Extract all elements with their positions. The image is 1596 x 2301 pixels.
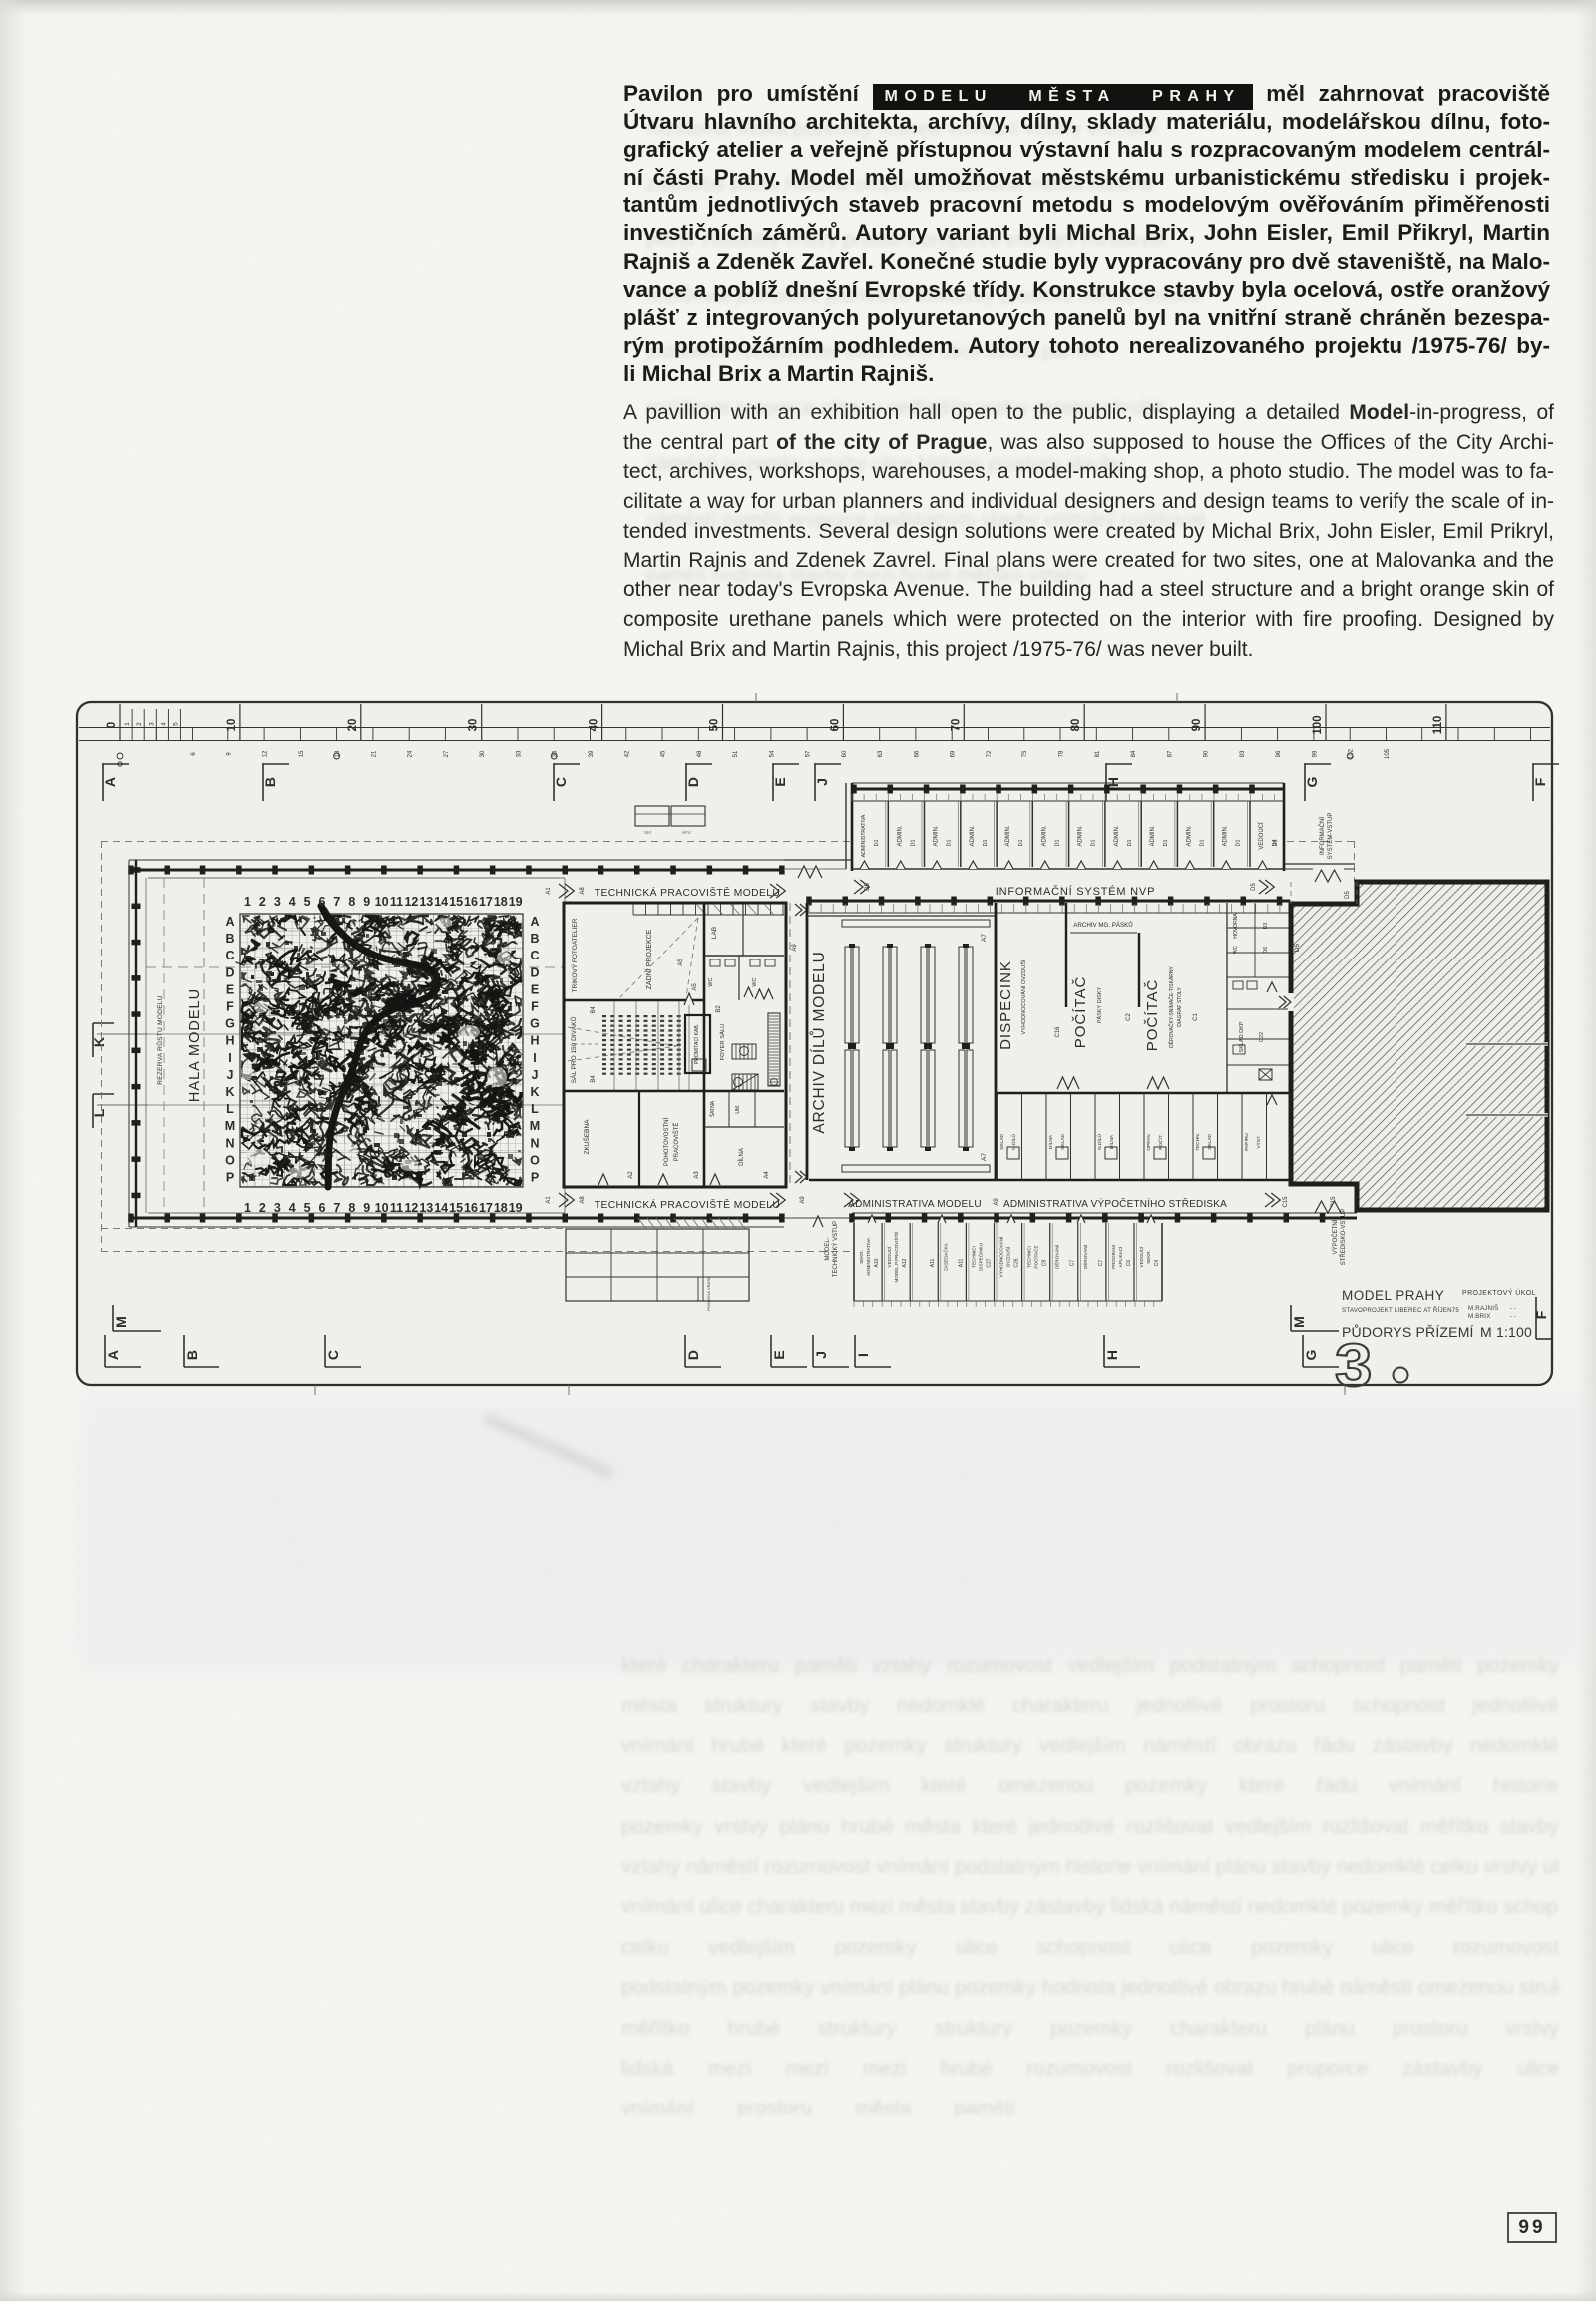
svg-text:- -: - -	[1510, 1305, 1516, 1312]
svg-text:VYHODNOCOVÁNÍ: VYHODNOCOVÁNÍ	[998, 1236, 1004, 1278]
svg-text:69: 69	[951, 750, 957, 757]
svg-text:M.BRIX: M.BRIX	[1468, 1313, 1491, 1320]
svg-text:ADMIN.: ADMIN.	[1041, 825, 1047, 846]
svg-text:PRACOVIŠTĚ: PRACOVIŠTĚ	[672, 1123, 680, 1162]
svg-text:SKl: SKl	[644, 830, 651, 835]
svg-text:60: 60	[842, 750, 848, 757]
svg-text:93: 93	[1240, 750, 1246, 757]
svg-text:B: B	[530, 932, 539, 946]
svg-text:A: A	[530, 915, 539, 929]
svg-text:27: 27	[444, 750, 450, 757]
svg-text:24: 24	[408, 750, 414, 757]
svg-text:6: 6	[319, 1201, 326, 1215]
svg-text:D1: D1	[1236, 839, 1242, 846]
svg-text:POČÍTAČ: POČÍTAČ	[1072, 976, 1089, 1049]
svg-text:DĚROVÁNÍ: DĚROVÁNÍ	[1081, 1244, 1088, 1269]
svg-text:REZERVA RŮSTU MODELU: REZERVA RŮSTU MODELU	[155, 995, 164, 1085]
svg-text:3: 3	[1335, 1333, 1372, 1396]
svg-text:C: C	[225, 949, 234, 962]
svg-text:6: 6	[319, 895, 326, 909]
svg-text:ADMIN.: ADMIN.	[970, 825, 976, 846]
svg-text:7: 7	[333, 1201, 340, 1215]
svg-text:11: 11	[390, 1201, 403, 1215]
svg-text:C: C	[530, 949, 539, 962]
svg-text:POČÍTAČE: POČÍTAČE	[1033, 1245, 1039, 1268]
svg-text:ADMINISTRATIVA MODELU: ADMINISTRATIVA MODELU	[848, 1199, 982, 1210]
svg-text:A2: A2	[628, 1171, 634, 1179]
svg-text:A8: A8	[580, 1196, 586, 1204]
svg-text:30: 30	[480, 750, 486, 757]
svg-text:J: J	[814, 778, 830, 786]
svg-text:C22: C22	[1259, 1032, 1265, 1042]
svg-text:M: M	[225, 1119, 235, 1133]
svg-text:78: 78	[1059, 750, 1065, 757]
svg-text:2: 2	[136, 722, 143, 726]
svg-text:STAVOPROJEKT LIBEREC AT ŘÍJEN7: STAVOPROJEKT LIBEREC AT ŘÍJEN75	[1342, 1306, 1459, 1314]
svg-text:4: 4	[160, 722, 167, 726]
svg-text:D5: D5	[1294, 943, 1301, 952]
svg-text:LAB: LAB	[711, 927, 718, 939]
svg-text:SKLAD DKP: SKLAD DKP	[1239, 1021, 1245, 1052]
svg-text:M: M	[530, 1119, 540, 1133]
svg-text:30: 30	[468, 719, 480, 732]
svg-text:G: G	[225, 1017, 235, 1031]
svg-text:D5: D5	[1345, 891, 1351, 899]
svg-text:75: 75	[1022, 750, 1028, 757]
svg-text:D: D	[225, 965, 234, 979]
svg-text:10: 10	[375, 895, 389, 909]
svg-text:57: 57	[806, 750, 812, 757]
svg-text:I: I	[228, 1051, 231, 1065]
svg-text:63: 63	[878, 750, 884, 757]
svg-text:4: 4	[289, 895, 296, 909]
svg-text:80: 80	[1070, 719, 1082, 732]
svg-text:5: 5	[304, 895, 311, 909]
svg-text:D: D	[685, 777, 701, 787]
svg-text:39: 39	[589, 750, 595, 757]
svg-text:A9: A9	[800, 1196, 806, 1204]
svg-text:3: 3	[274, 1201, 281, 1215]
svg-text:TECHNICI: TECHNICI	[1027, 1246, 1032, 1268]
svg-text:C6: C6	[1126, 1260, 1132, 1267]
svg-text:MODEL.P.PRACOVIŠTĚ: MODEL.P.PRACOVIŠTĚ	[892, 1232, 899, 1283]
svg-text:I: I	[855, 1353, 871, 1357]
svg-text:ZADNÍ PROJEKCE: ZADNÍ PROJEKCE	[644, 929, 653, 989]
svg-text:ADMIN.: ADMIN.	[1005, 825, 1011, 846]
svg-text:MODEL-: MODEL-	[825, 1237, 831, 1260]
svg-text:42: 42	[624, 750, 630, 757]
svg-text:D1: D1	[1199, 839, 1205, 846]
svg-text:C15: C15	[1283, 1196, 1289, 1208]
svg-text:ZASEDAČKA: ZASEDAČKA	[942, 1242, 948, 1271]
svg-text:ARCHIV DÍLŮ MODELU: ARCHIV DÍLŮ MODELU	[810, 951, 828, 1133]
svg-text:WC: WC	[1233, 945, 1239, 954]
svg-text:90: 90	[1204, 750, 1210, 757]
svg-text:1: 1	[124, 722, 131, 726]
svg-text:ADMIN.: ADMIN.	[897, 825, 903, 846]
svg-text:15: 15	[449, 1201, 463, 1215]
svg-text:99: 99	[1312, 750, 1318, 757]
svg-text:C1: C1	[1193, 1013, 1199, 1021]
svg-text:TECHN.: TECHN.	[1195, 1133, 1201, 1151]
svg-text:A: A	[105, 1350, 121, 1360]
svg-text:L: L	[91, 1108, 107, 1117]
svg-text:POHOTOVOSTNÍ: POHOTOVOSTNÍ	[663, 1118, 670, 1167]
svg-text:HOVORNA: HOVORNA	[1233, 913, 1239, 939]
svg-text:K: K	[225, 1085, 234, 1099]
svg-text:PAPÍRU: PAPÍRU	[1243, 1133, 1250, 1151]
svg-text:SEKR.: SEKR.	[1146, 1250, 1151, 1264]
svg-text:ARCHIV MG. PÁSKŮ: ARCHIV MG. PÁSKŮ	[1073, 922, 1132, 929]
svg-text:20: 20	[347, 719, 359, 732]
svg-text:- -: - -	[1510, 1313, 1516, 1320]
svg-text:E: E	[772, 777, 788, 786]
svg-text:F: F	[1532, 777, 1548, 786]
svg-text:POČÍTAČ: POČÍTAČ	[1144, 979, 1161, 1052]
svg-text:E: E	[226, 982, 234, 996]
svg-text:A: A	[225, 915, 234, 929]
svg-text:A1: A1	[546, 887, 552, 895]
svg-text:9: 9	[363, 1201, 370, 1215]
svg-text:C4: C4	[1154, 1260, 1160, 1267]
svg-text:12: 12	[404, 895, 418, 909]
svg-text:2: 2	[259, 895, 266, 909]
svg-text:A7: A7	[981, 1153, 988, 1161]
svg-text:13: 13	[419, 1201, 433, 1215]
svg-text:INFORMAČNÍ: INFORMAČNÍ	[1319, 817, 1326, 855]
svg-text:14: 14	[434, 1201, 448, 1215]
svg-text:12: 12	[404, 1201, 418, 1215]
svg-text:A9: A9	[792, 944, 798, 952]
svg-text:13: 13	[419, 895, 433, 909]
svg-text:7: 7	[333, 895, 340, 909]
svg-text:51: 51	[733, 750, 739, 757]
svg-text:H: H	[1104, 1350, 1120, 1360]
svg-text:C7: C7	[1070, 1260, 1076, 1267]
svg-text:H: H	[225, 1034, 234, 1048]
svg-text:F: F	[1533, 1310, 1549, 1319]
svg-text:A5: A5	[692, 983, 698, 991]
svg-text:VEDOUCÍ: VEDOUCÍ	[1138, 1246, 1144, 1268]
svg-text:D1: D1	[947, 839, 953, 846]
svg-text:19: 19	[509, 895, 523, 909]
svg-text:8: 8	[348, 895, 355, 909]
svg-text:SYSTÉM-VSTUP: SYSTÉM-VSTUP	[1327, 813, 1334, 860]
svg-text:OVZDUŠÍ: OVZDUŠÍ	[1005, 1246, 1011, 1267]
svg-text:60: 60	[829, 719, 841, 732]
svg-text:A1: A1	[546, 1196, 552, 1204]
svg-text:VÝPOČETNÍ: VÝPOČETNÍ	[1332, 1219, 1339, 1254]
svg-text:D1: D1	[983, 839, 989, 846]
svg-text:M.RAJNIŠ: M.RAJNIŠ	[1468, 1305, 1498, 1312]
svg-text:ADMIN.: ADMIN.	[1078, 825, 1084, 846]
svg-text:16: 16	[464, 1201, 478, 1215]
svg-text:TECHNICKÁ PRACOVIŠTĚ MODELU: TECHNICKÁ PRACOVIŠTĚ MODELU	[595, 886, 780, 899]
svg-text:5: 5	[172, 722, 179, 726]
svg-text:K: K	[91, 1037, 107, 1047]
svg-text:TECHNICI: TECHNICI	[971, 1246, 976, 1268]
svg-text:DIAGRAF STOLY: DIAGRAF STOLY	[1177, 987, 1183, 1027]
svg-text:SEKR.: SEKR.	[859, 1250, 864, 1264]
svg-text:POSUVNÁ VRATA: POSUVNÁ VRATA	[706, 1277, 711, 1311]
svg-text:D3: D3	[1263, 923, 1269, 930]
svg-text:8: 8	[348, 1201, 355, 1215]
svg-text:PROMÍTACÍ KAB.: PROMÍTACÍ KAB.	[693, 1024, 700, 1064]
svg-text:A: A	[102, 777, 118, 787]
svg-text:14: 14	[434, 895, 448, 909]
svg-text:C16: C16	[1055, 1026, 1061, 1038]
svg-text:C: C	[325, 1350, 341, 1360]
svg-text:C9: C9	[1042, 1260, 1048, 1267]
svg-text:45: 45	[661, 750, 667, 757]
svg-text:N: N	[225, 1136, 234, 1150]
svg-text:21: 21	[371, 750, 377, 757]
svg-text:A11: A11	[930, 1259, 936, 1268]
svg-text:72: 72	[987, 750, 993, 757]
svg-text:15: 15	[449, 895, 463, 909]
svg-text:O: O	[530, 1153, 540, 1167]
svg-text:WC: WC	[752, 977, 758, 986]
svg-text:D1: D1	[1091, 839, 1097, 846]
svg-text:M 1:100: M 1:100	[1480, 1324, 1532, 1340]
svg-text:G: G	[530, 1017, 540, 1031]
svg-text:WC: WC	[708, 977, 714, 986]
svg-text:B4: B4	[591, 1075, 597, 1083]
svg-text:19: 19	[509, 1201, 523, 1215]
svg-text:48: 48	[697, 750, 703, 757]
svg-text:12: 12	[263, 750, 269, 757]
svg-text:0: 0	[106, 722, 118, 728]
svg-text:D1: D1	[874, 839, 880, 846]
svg-text:A4: A4	[764, 1171, 770, 1179]
svg-text:DĚROVÁNÍ: DĚROVÁNÍ	[1053, 1244, 1060, 1269]
svg-text:INFORMAČNÍ SYSTÉM NVP: INFORMAČNÍ SYSTÉM NVP	[996, 885, 1155, 898]
svg-text:DĚROVAČKY-SNÍMAČE-TISKÁRNY: DĚROVAČKY-SNÍMAČE-TISKÁRNY	[1167, 965, 1175, 1047]
svg-text:TECHNICKÁ PRACOVIŠTĚ MODELU: TECHNICKÁ PRACOVIŠTĚ MODELU	[595, 1198, 780, 1211]
svg-text:10: 10	[375, 1201, 389, 1215]
svg-text:D: D	[685, 1350, 701, 1360]
svg-text:OPRAV.: OPRAV.	[1146, 1133, 1152, 1150]
svg-text:TECHNICKÝ VSTUP: TECHNICKÝ VSTUP	[832, 1221, 839, 1277]
svg-text:5: 5	[304, 1201, 311, 1215]
svg-text:D1: D1	[1018, 839, 1024, 846]
svg-text:J: J	[813, 1351, 829, 1359]
svg-text:F: F	[531, 1000, 539, 1014]
svg-text:C27: C27	[986, 1258, 992, 1267]
svg-text:18: 18	[494, 1201, 508, 1215]
svg-text:D1: D1	[910, 839, 916, 846]
svg-text:PÁSKY DISKY: PÁSKY DISKY	[1096, 987, 1103, 1024]
svg-text:DÍLNA: DÍLNA	[738, 1148, 745, 1166]
svg-text:I: I	[533, 1051, 536, 1065]
svg-text:SKLAD: SKLAD	[999, 1134, 1005, 1150]
svg-text:33: 33	[517, 750, 523, 757]
svg-text:A12: A12	[902, 1258, 908, 1267]
svg-text:P: P	[531, 1171, 539, 1185]
svg-text:2: 2	[259, 1201, 266, 1215]
svg-text:HALA MODELU: HALA MODELU	[187, 988, 202, 1102]
svg-text:J: J	[532, 1068, 539, 1082]
svg-text:FOYER SÁLU: FOYER SÁLU	[719, 1024, 726, 1061]
svg-text:DISPECINK: DISPECINK	[997, 960, 1014, 1050]
svg-text:SÁL PRO 150 DIVÁKŮ: SÁL PRO 150 DIVÁKŮ	[569, 1016, 578, 1083]
svg-text:E: E	[771, 1350, 787, 1359]
svg-text:B: B	[225, 932, 234, 946]
svg-text:96: 96	[1276, 750, 1282, 757]
svg-text:VÝST.: VÝST.	[1255, 1135, 1262, 1148]
svg-text:B: B	[262, 777, 278, 787]
svg-text:P: P	[226, 1171, 234, 1185]
svg-text:A3: A3	[694, 1171, 700, 1179]
svg-text:105: 105	[1385, 748, 1391, 759]
svg-text:A7: A7	[981, 934, 988, 942]
svg-text:D5: D5	[865, 883, 871, 891]
svg-text:A10: A10	[874, 1258, 880, 1267]
svg-text:E: E	[531, 982, 539, 996]
svg-text:G: G	[1304, 776, 1320, 787]
svg-text:C7: C7	[1098, 1260, 1104, 1267]
svg-text:B2: B2	[716, 1005, 722, 1013]
svg-text:VEDOUCÍ: VEDOUCÍ	[1258, 822, 1265, 850]
svg-text:66: 66	[914, 750, 920, 757]
svg-text:1: 1	[244, 895, 251, 909]
svg-text:ŠATNA: ŠATNA	[709, 1100, 716, 1117]
svg-text:DISPEČINKU: DISPEČINKU	[977, 1243, 983, 1271]
svg-text:A9: A9	[994, 1198, 999, 1206]
svg-text:4: 4	[289, 1201, 296, 1215]
svg-text:A8: A8	[580, 887, 586, 895]
svg-text:D1: D1	[1163, 839, 1169, 846]
svg-text:K: K	[530, 1085, 539, 1099]
svg-text:ZKUŠEBNA: ZKUŠEBNA	[582, 1119, 591, 1155]
svg-text:C: C	[553, 777, 569, 787]
svg-text:D1: D1	[1127, 839, 1133, 846]
svg-text:ADMINISTRATIVA VÝPOČETNÍHO STŘ: ADMINISTRATIVA VÝPOČETNÍHO STŘEDISKA	[1003, 1197, 1227, 1210]
svg-text:B4: B4	[591, 1006, 597, 1014]
svg-text:15: 15	[299, 750, 305, 757]
svg-text:16: 16	[464, 895, 478, 909]
svg-text:M: M	[113, 1316, 129, 1328]
svg-text:87: 87	[1167, 750, 1173, 757]
svg-text:ADMINISTRATIVA: ADMINISTRATIVA	[866, 1237, 871, 1276]
svg-text:PROGRAM: PROGRAM	[1111, 1245, 1116, 1269]
svg-text:D: D	[530, 965, 539, 979]
svg-text:9: 9	[363, 895, 370, 909]
svg-text:ADMIN.: ADMIN.	[934, 825, 940, 846]
svg-text:H: H	[530, 1034, 539, 1048]
svg-text:ADMIN.: ADMIN.	[1150, 825, 1156, 846]
svg-text:L: L	[531, 1102, 539, 1116]
svg-text:1: 1	[244, 1201, 251, 1215]
svg-text:VYHODNOCOVÁNÍ OVZDUŠÍ: VYHODNOCOVÁNÍ OVZDUŠÍ	[1020, 959, 1027, 1034]
svg-text:ADMIN.: ADMIN.	[1114, 825, 1120, 846]
svg-text:M: M	[1291, 1316, 1307, 1328]
svg-text:90: 90	[1191, 719, 1203, 732]
svg-text:B: B	[184, 1350, 199, 1360]
svg-text:ADMINISTRATIVA: ADMINISTRATIVA	[861, 814, 867, 857]
svg-text:APLIKACÍ: APLIKACÍ	[1117, 1246, 1123, 1267]
svg-text:DÍLNA: DÍLNA	[1047, 1134, 1054, 1149]
svg-text:ADMIN.: ADMIN.	[1186, 825, 1192, 846]
svg-text:18: 18	[494, 895, 508, 909]
svg-text:D5: D5	[1251, 883, 1257, 891]
svg-text:A11: A11	[958, 1259, 964, 1268]
svg-text:54: 54	[769, 750, 775, 757]
svg-text:110: 110	[1432, 716, 1444, 735]
svg-text:84: 84	[1131, 750, 1137, 757]
svg-text:D1: D1	[1054, 839, 1060, 846]
svg-text:C2: C2	[1126, 1013, 1132, 1021]
svg-text:3: 3	[274, 895, 281, 909]
svg-text:17: 17	[479, 1201, 493, 1215]
svg-text:N: N	[530, 1136, 539, 1150]
svg-text:J: J	[227, 1068, 234, 1082]
svg-text:A5: A5	[678, 959, 684, 966]
svg-text:VEDOUCÍ: VEDOUCÍ	[886, 1246, 892, 1268]
svg-text:HFd: HFd	[682, 830, 691, 835]
svg-text:C26: C26	[1014, 1258, 1020, 1267]
svg-text:N.DÍLŮ: N.DÍLŮ	[1096, 1134, 1103, 1150]
svg-text:11: 11	[390, 895, 403, 909]
svg-text:MODEL PRAHY: MODEL PRAHY	[1342, 1288, 1444, 1303]
svg-text:ADMIN.: ADMIN.	[1223, 825, 1229, 846]
svg-text:TRIKOVÝ FOTOATELIER: TRIKOVÝ FOTOATELIER	[570, 918, 579, 992]
svg-text:PROJEKTOVÝ ÚKOL: PROJEKTOVÝ ÚKOL	[1462, 1288, 1536, 1297]
svg-text:50: 50	[709, 719, 721, 732]
svg-text:17: 17	[479, 895, 493, 909]
svg-text:O: O	[225, 1153, 235, 1167]
svg-text:3: 3	[148, 722, 155, 726]
svg-text:G: G	[1303, 1349, 1319, 1360]
svg-text:D6: D6	[1263, 947, 1269, 954]
svg-text:L: L	[226, 1102, 234, 1116]
svg-text:UM.: UM.	[735, 1104, 741, 1113]
svg-text:81: 81	[1095, 750, 1101, 757]
svg-text:D2: D2	[1273, 839, 1279, 846]
svg-text:F: F	[226, 1000, 234, 1014]
